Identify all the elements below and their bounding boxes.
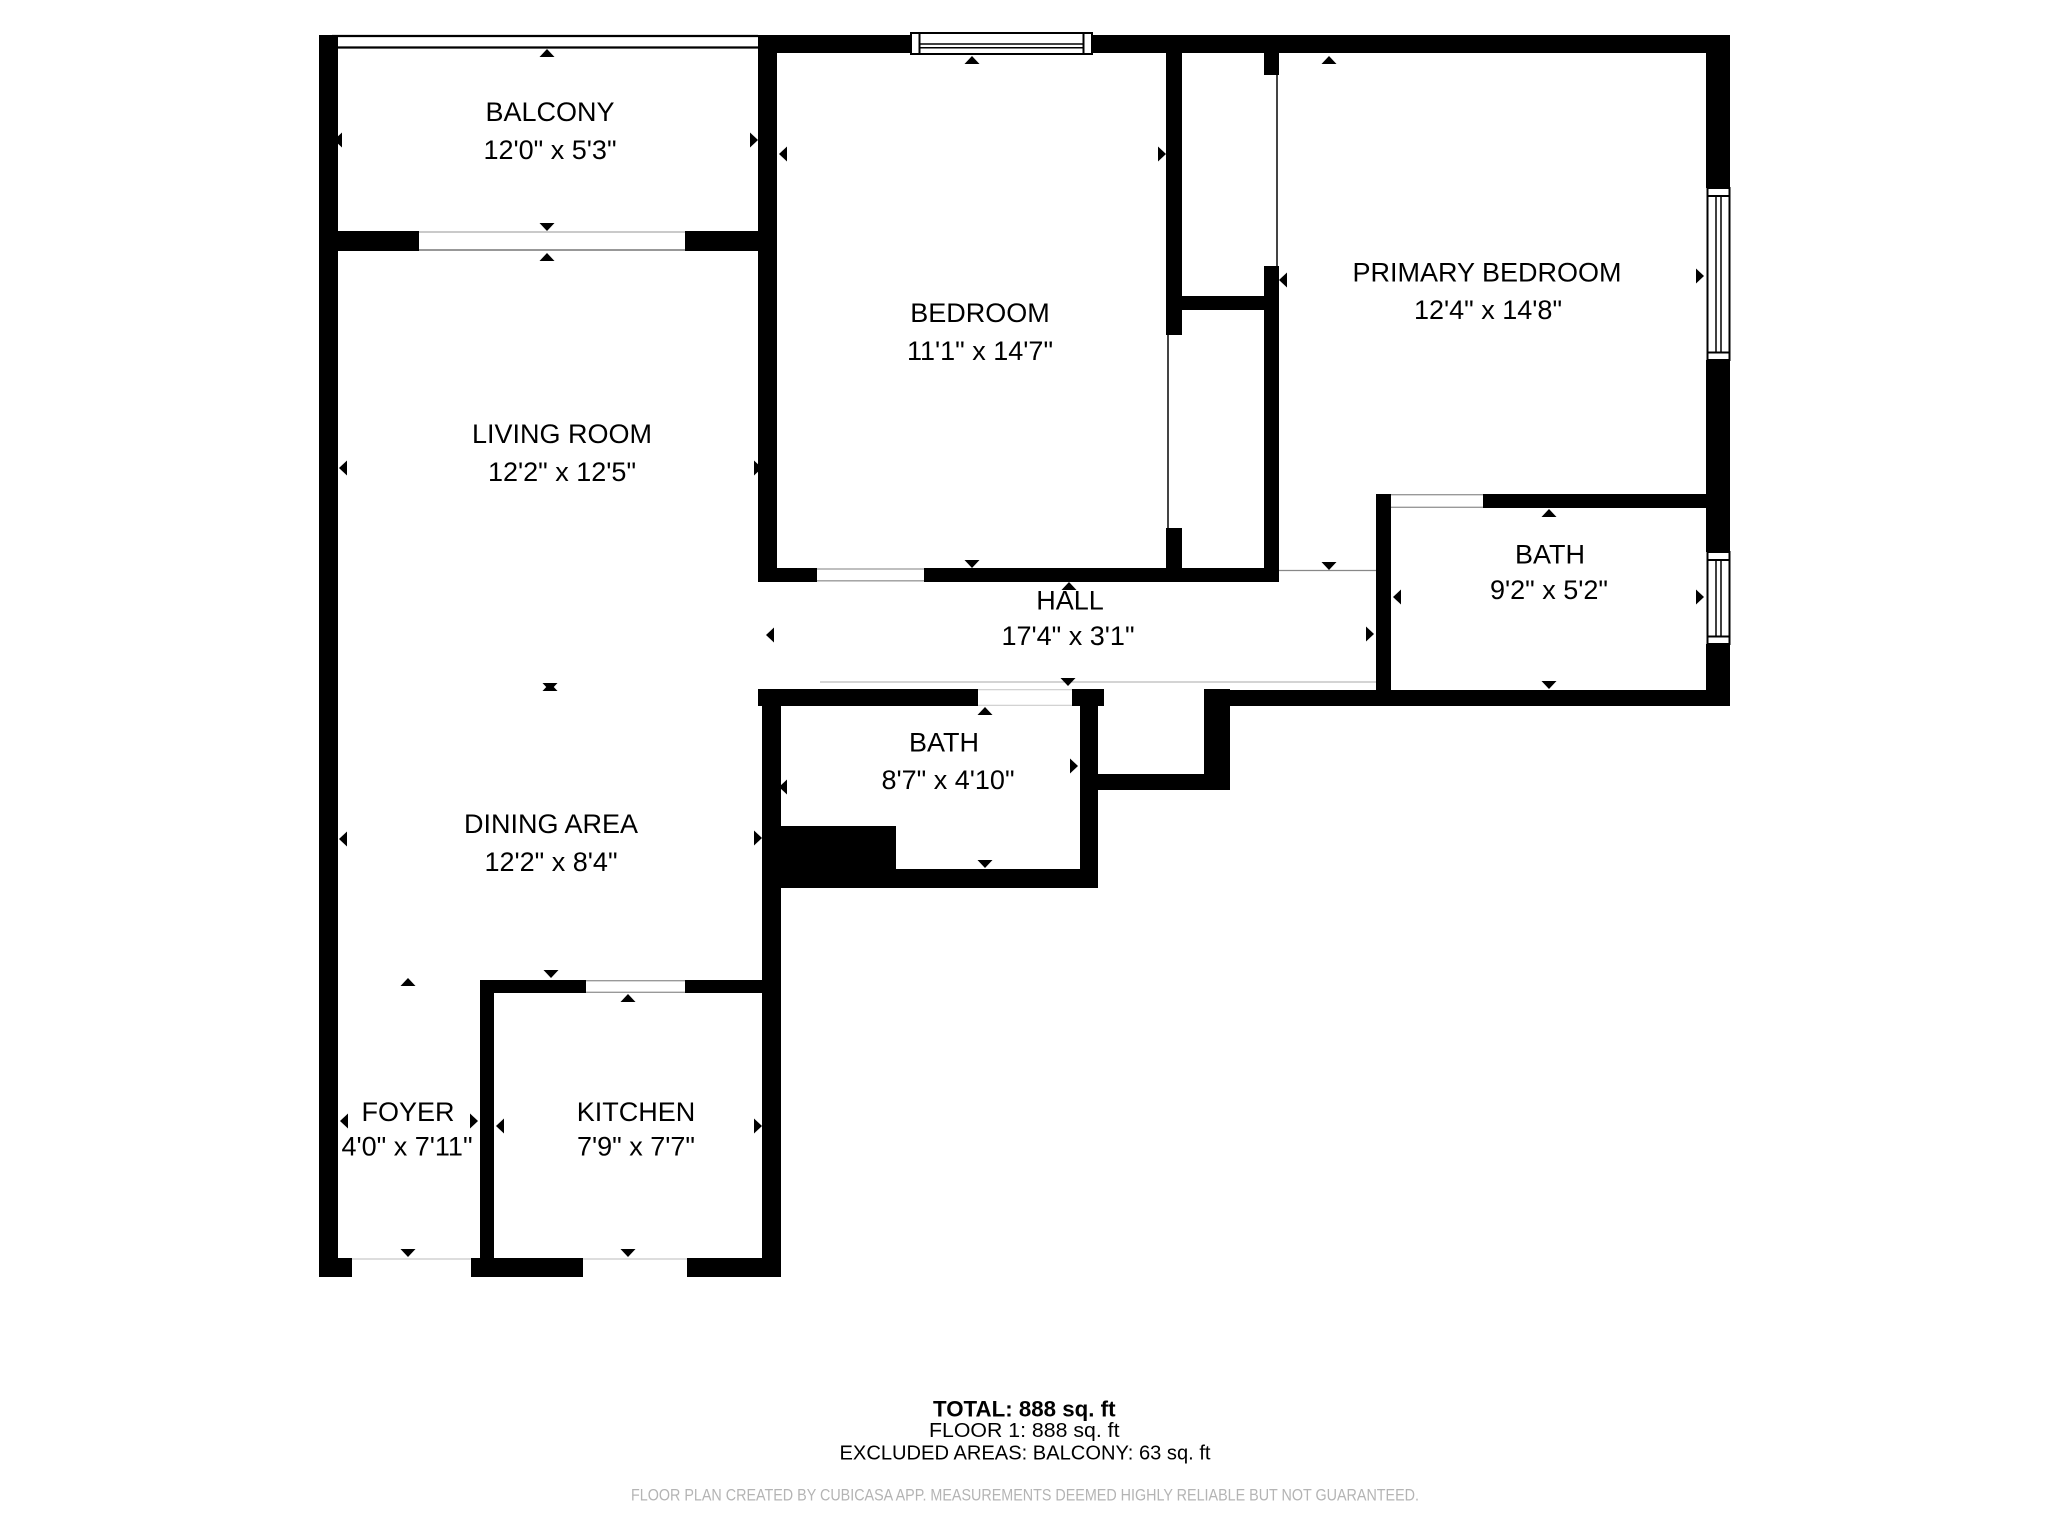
svg-text:KITCHEN: KITCHEN: [577, 1097, 696, 1127]
svg-text:PRIMARY BEDROOM: PRIMARY BEDROOM: [1352, 258, 1621, 288]
svg-text:9'2" x 5'2": 9'2" x 5'2": [1490, 575, 1608, 605]
svg-text:12'2" x 8'4": 12'2" x 8'4": [484, 847, 617, 877]
svg-text:12'4" x 14'8": 12'4" x 14'8": [1414, 295, 1562, 325]
svg-text:EXCLUDED AREAS: BALCONY: 63 sq: EXCLUDED AREAS: BALCONY: 63 sq. ft: [840, 1443, 1211, 1465]
svg-text:FLOOR PLAN CREATED BY CUBICASA: FLOOR PLAN CREATED BY CUBICASA APP. MEAS…: [631, 1486, 1419, 1505]
svg-text:17'4" x 3'1": 17'4" x 3'1": [1001, 621, 1134, 651]
svg-text:LIVING ROOM: LIVING ROOM: [472, 419, 652, 449]
svg-text:FLOOR 1: 888 sq. ft: FLOOR 1: 888 sq. ft: [929, 1420, 1120, 1442]
svg-text:BALCONY: BALCONY: [485, 97, 614, 127]
svg-text:DINING AREA: DINING AREA: [464, 809, 638, 839]
svg-text:12'2" x 12'5": 12'2" x 12'5": [488, 457, 636, 487]
svg-text:8'7" x 4'10": 8'7" x 4'10": [881, 765, 1014, 795]
svg-text:11'1" x 14'7": 11'1" x 14'7": [907, 336, 1053, 366]
svg-text:FOYER: FOYER: [361, 1097, 454, 1127]
svg-text:BEDROOM: BEDROOM: [910, 298, 1050, 328]
svg-text:BATH: BATH: [1515, 540, 1585, 570]
svg-text:12'0" x 5'3": 12'0" x 5'3": [483, 135, 616, 165]
svg-text:BATH: BATH: [909, 728, 979, 758]
svg-text:TOTAL: 888 sq. ft: TOTAL: 888 sq. ft: [933, 1397, 1116, 1422]
svg-text:HALL: HALL: [1036, 586, 1104, 616]
svg-text:4'0" x 7'11": 4'0" x 7'11": [341, 1132, 472, 1162]
svg-text:7'9" x 7'7": 7'9" x 7'7": [577, 1132, 695, 1162]
